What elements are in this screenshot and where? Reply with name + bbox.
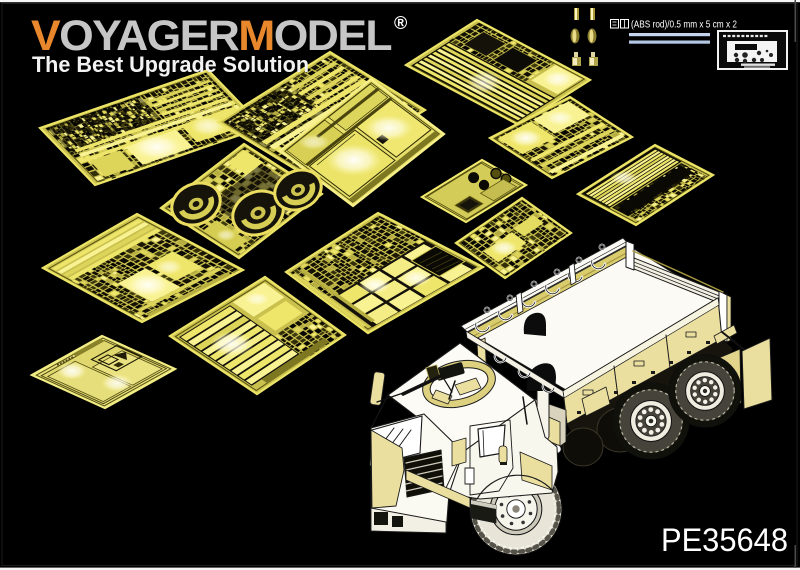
svg-text:(ABS rod)/0.5 mm x 5 cm x 2: (ABS rod)/0.5 mm x 5 cm x 2 (631, 19, 737, 31)
svg-text:®: ® (394, 13, 407, 33)
svg-text:PE35648: PE35648 (661, 522, 788, 558)
svg-text:The Best Upgrade Solution: The Best Upgrade Solution (32, 52, 309, 77)
